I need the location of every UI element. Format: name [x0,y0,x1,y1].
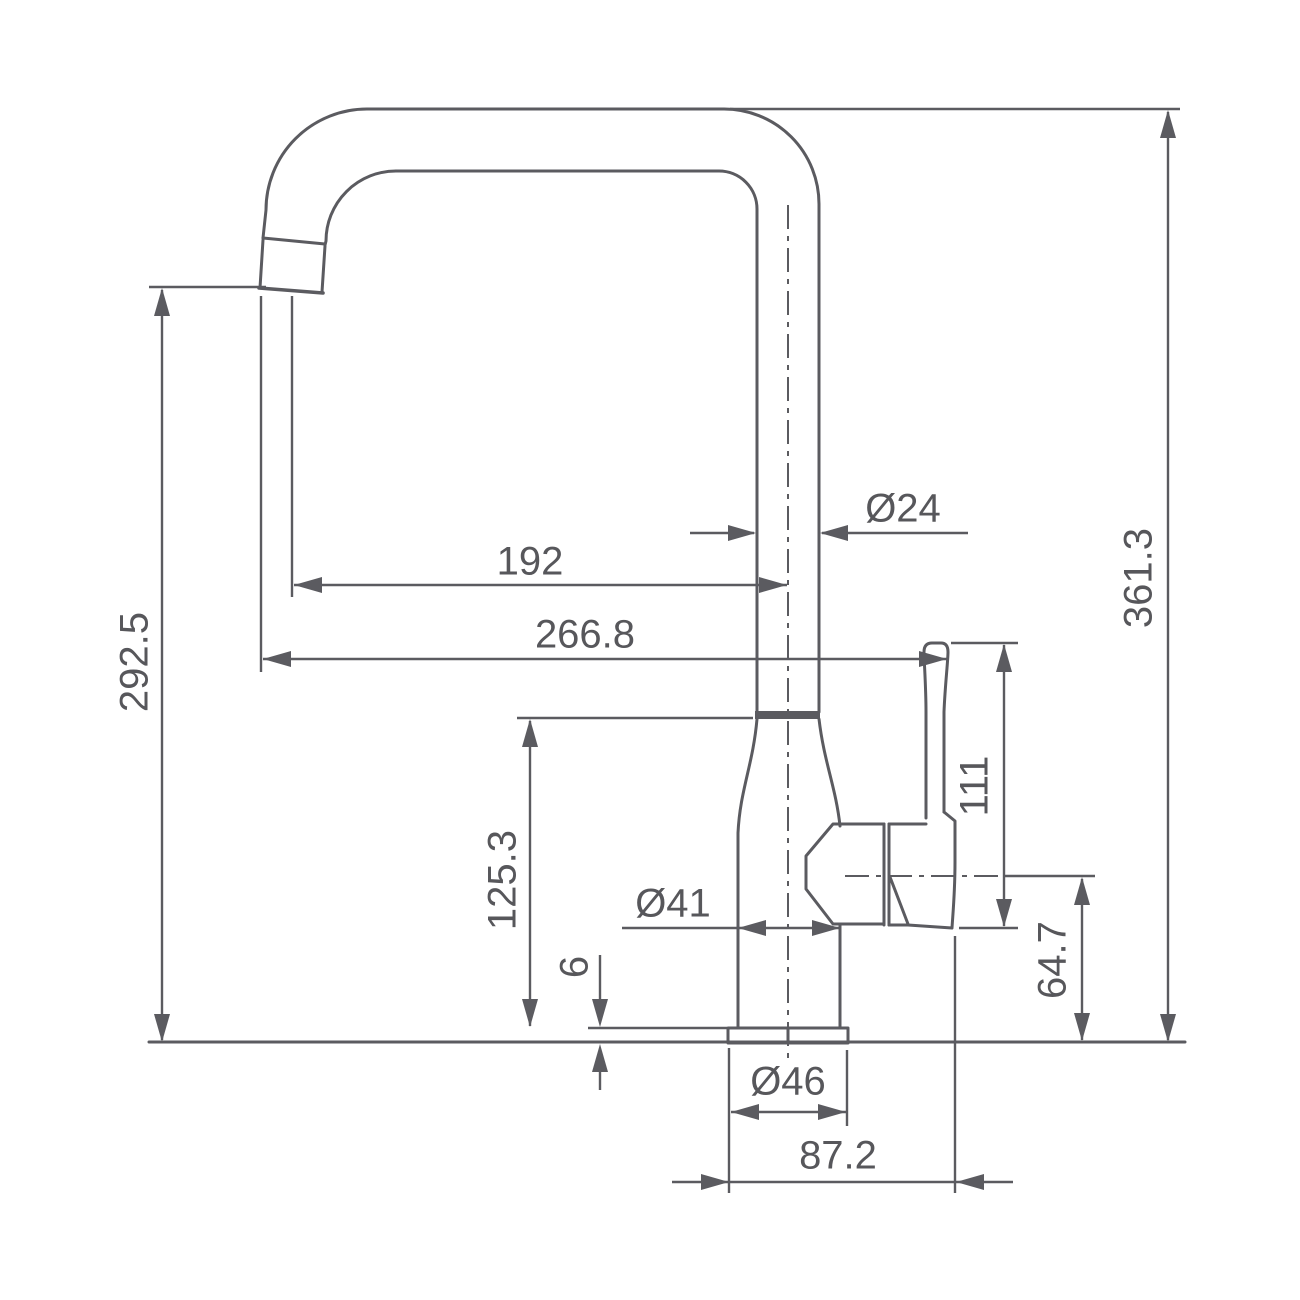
aerator-outlet-edge [259,288,323,293]
body-right-edge-upper [819,719,840,826]
dim-body-height: 125.3 [481,718,753,1028]
dim-label-d24: Ø24 [865,487,941,531]
dim-base-to-handle: 87.2 [672,936,1013,1193]
dim-label-d46: Ø46 [750,1060,826,1104]
spout-left-inner-bend [325,171,396,245]
dim-label-64-7: 64.7 [1031,921,1075,999]
dim-label-192: 192 [497,540,564,584]
dim-label-6: 6 [553,956,597,978]
aerator-joint-line [263,238,325,244]
valve-cone [806,824,884,924]
handle-hub [889,812,955,928]
dim-base-diameter: Ø46 [731,1050,847,1126]
dim-tube-diameter: Ø24 [690,487,968,541]
dim-label-111: 111 [953,756,997,817]
drawing-canvas: 292.5 361.3 192 266.8 Ø24 [0,0,1300,1300]
dim-label-87-2: 87.2 [799,1134,877,1178]
faucet-technical-drawing: 292.5 361.3 192 266.8 Ø24 [0,0,1300,1300]
dim-label-125-3: 125.3 [481,830,525,930]
dim-spout-outlet-height: 292.5 [113,287,266,1042]
dim-base-thickness: 6 [553,955,608,1090]
dim-label-266-8: 266.8 [535,613,635,657]
dim-handle-height: 111 [951,643,1018,928]
aerator-sides [260,240,325,292]
dim-label-361-3: 361.3 [1117,528,1161,628]
dim-overall-reach: 266.8 [261,296,947,672]
dim-spout-reach: 192 [292,296,787,597]
body-left-edge [738,719,757,1028]
dim-label-292-5: 292.5 [113,612,157,712]
dim-label-d41: Ø41 [635,882,711,926]
dim-valve-center-height: 64.7 [1005,876,1095,1041]
handle-lever [924,643,948,818]
spout-left-outer-bend [263,109,367,238]
